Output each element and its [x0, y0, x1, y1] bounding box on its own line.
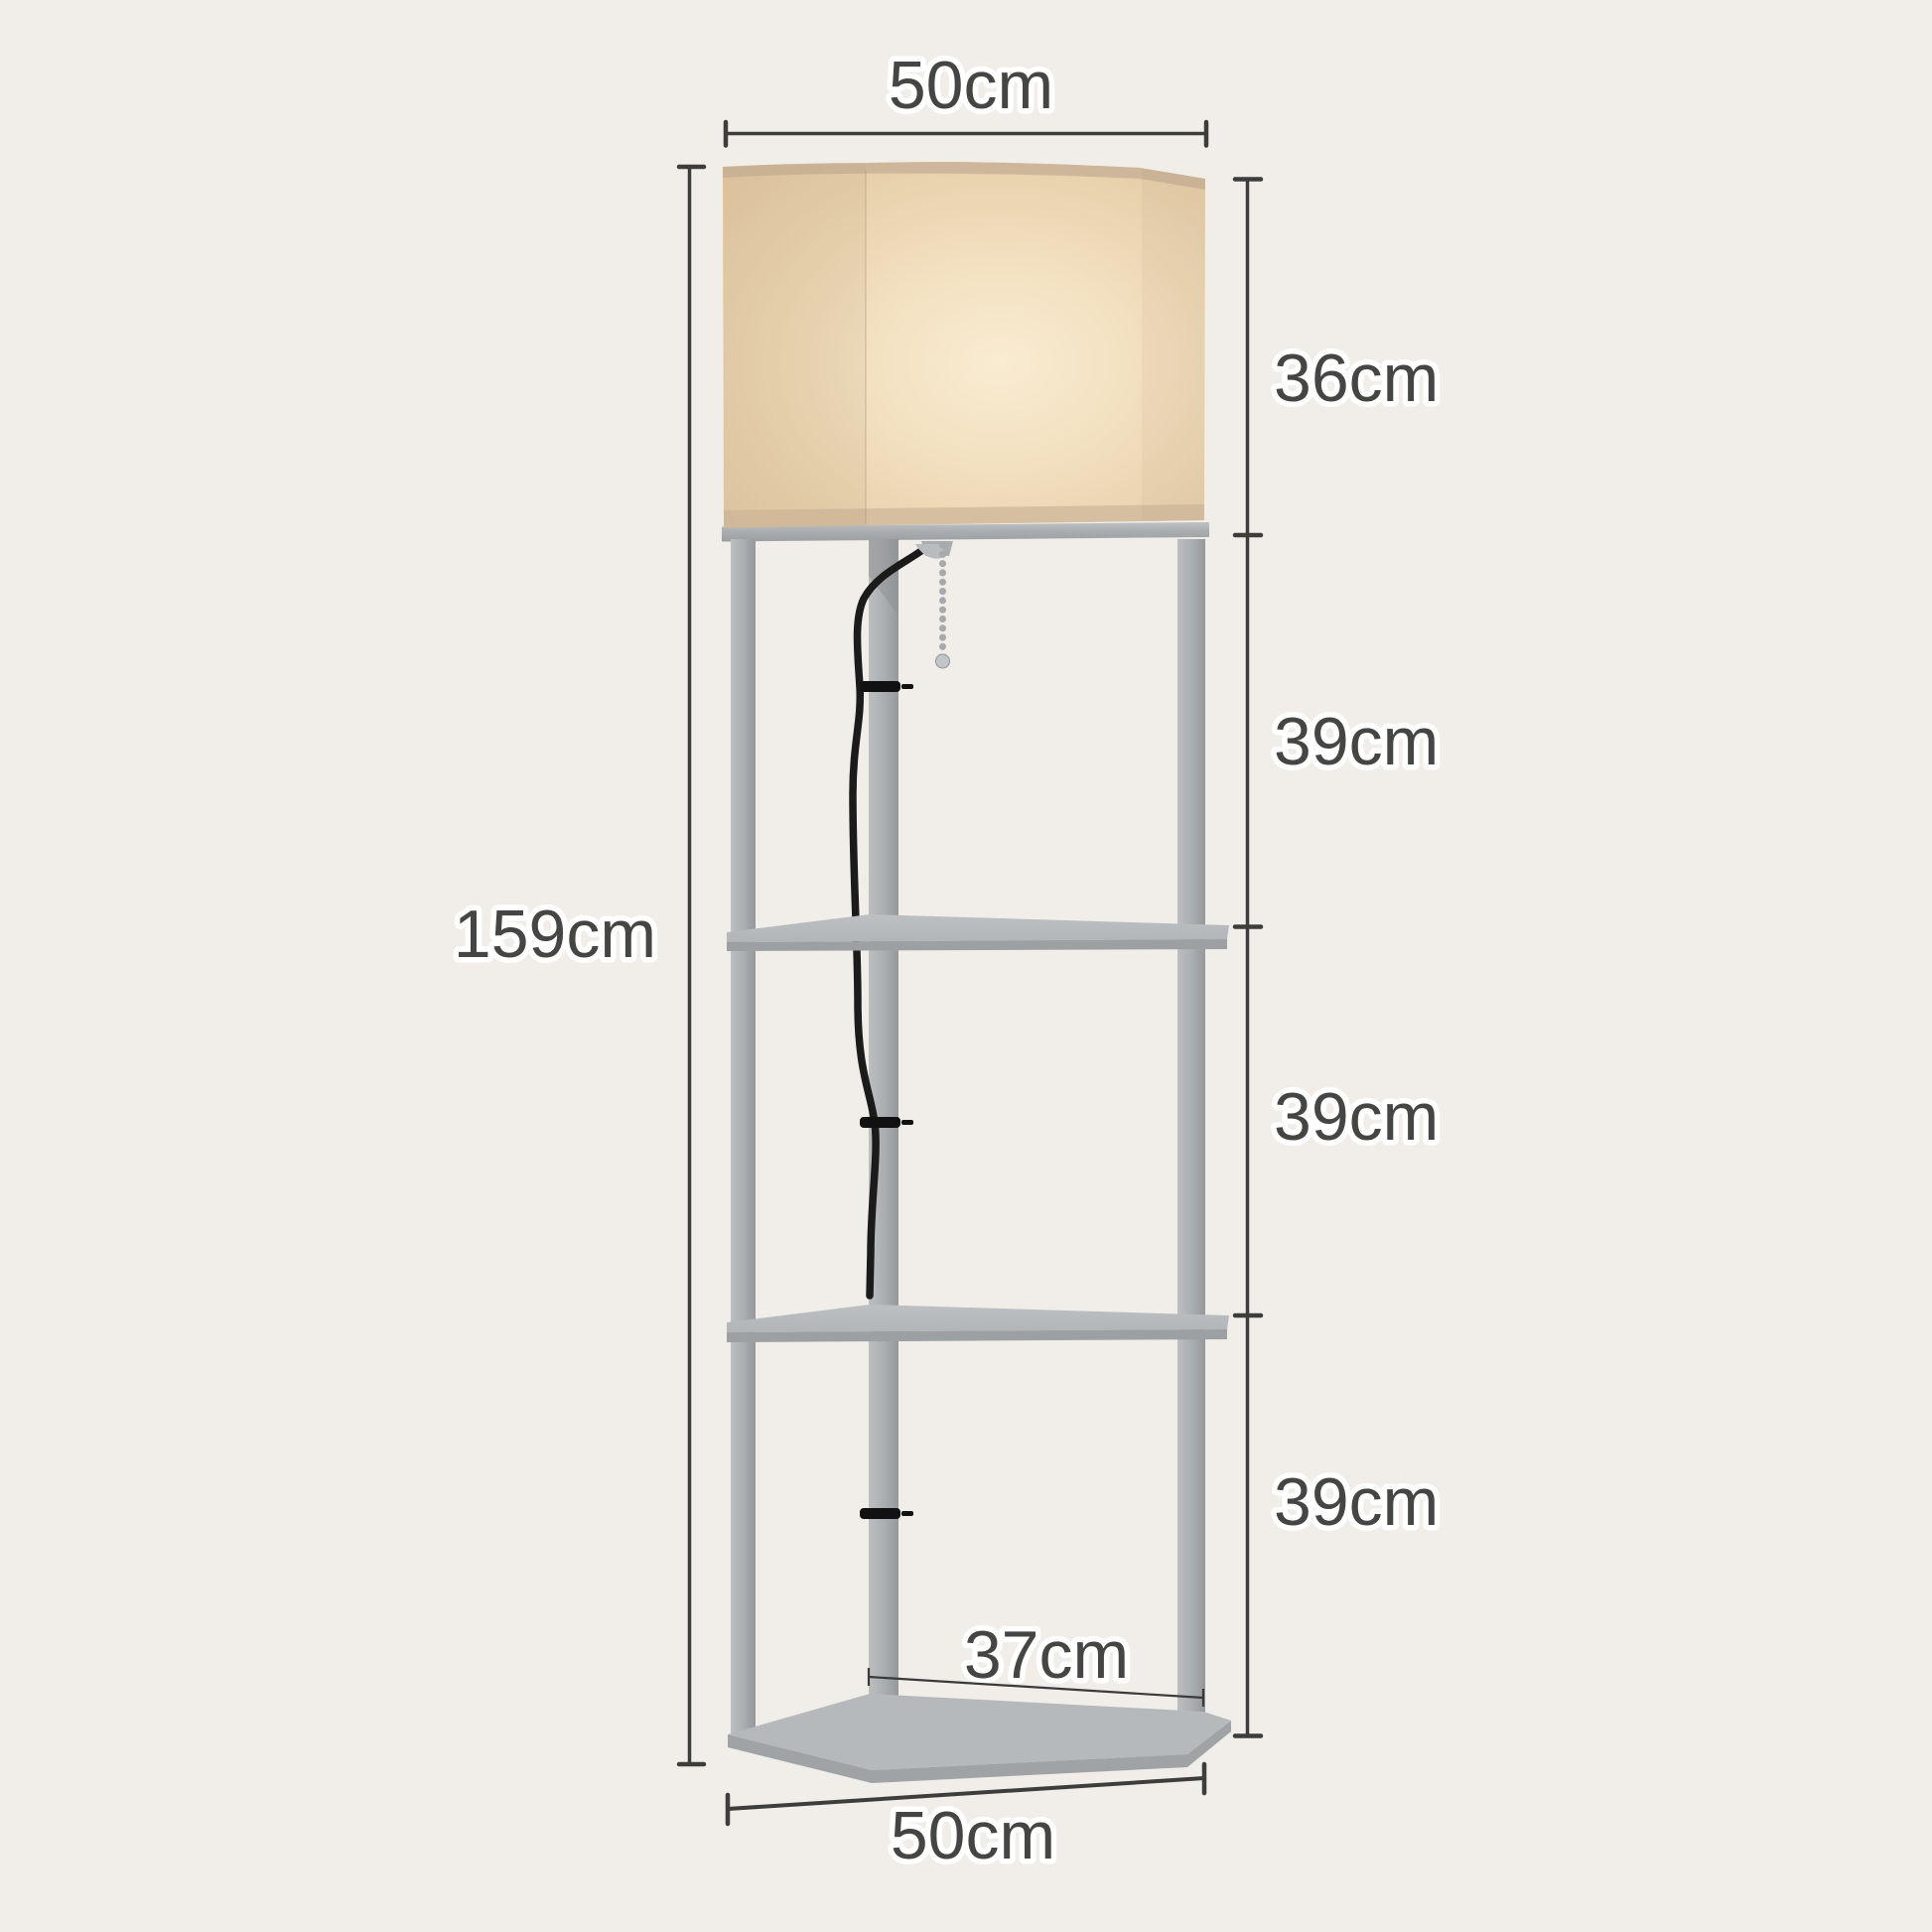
svg-text:39cm: 39cm [1274, 1464, 1439, 1540]
svg-text:39cm: 39cm [1274, 704, 1439, 779]
svg-text:50cm: 50cm [891, 1798, 1055, 1873]
svg-text:36cm: 36cm [1274, 341, 1439, 416]
svg-text:39cm: 39cm [1274, 1079, 1439, 1155]
svg-text:159cm: 159cm [454, 897, 656, 972]
svg-text:37cm: 37cm [964, 1617, 1129, 1693]
svg-text:50cm: 50cm [889, 48, 1053, 123]
